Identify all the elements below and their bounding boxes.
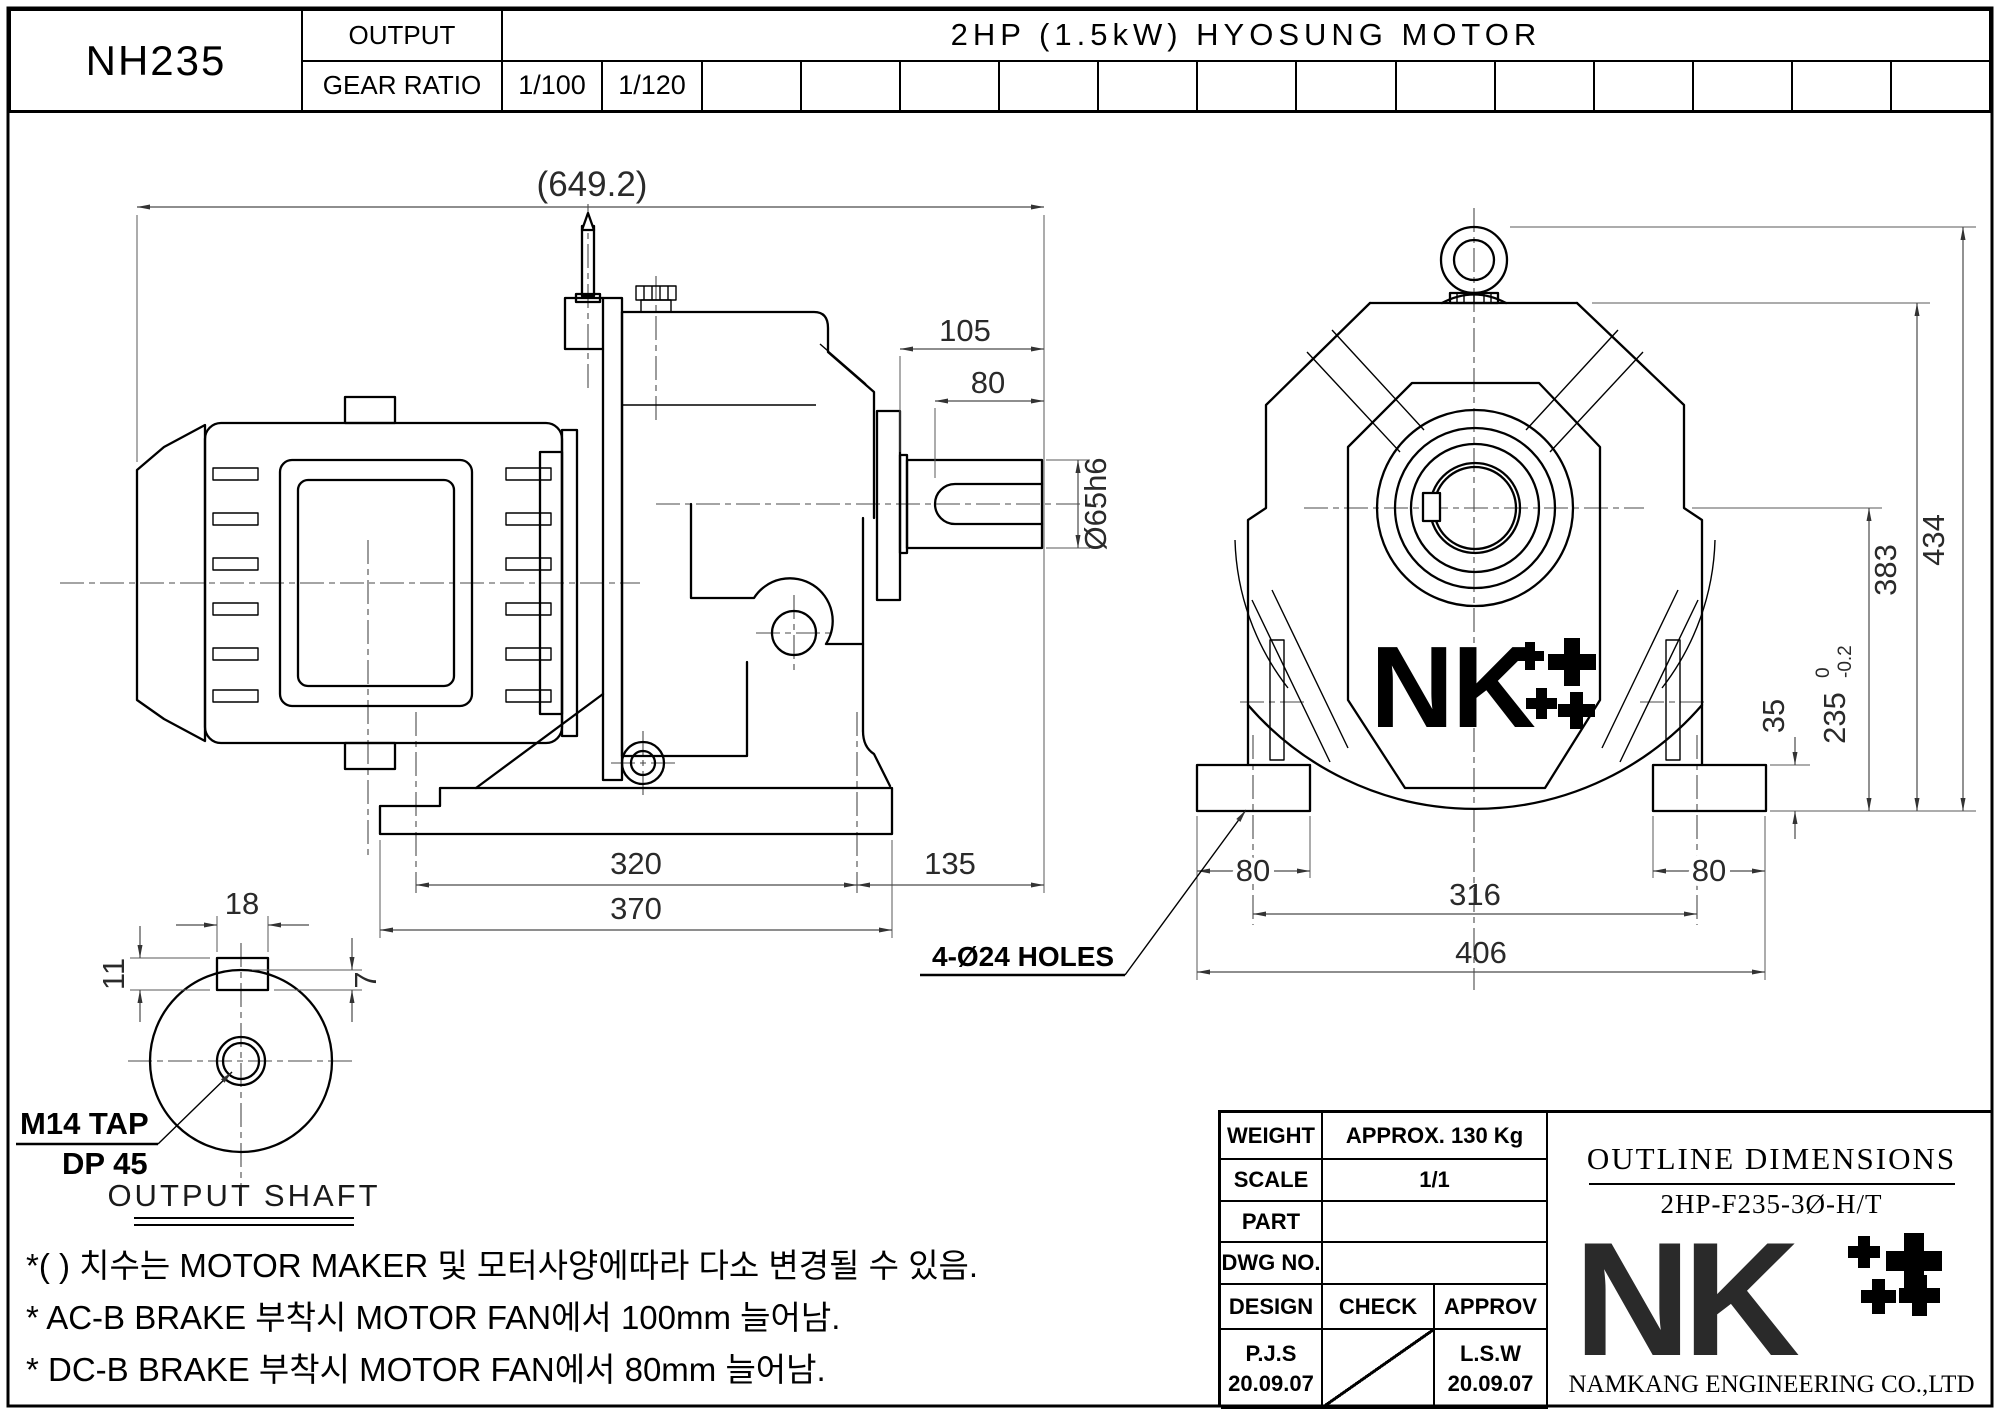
shaft-detail-view: 18 11 7 M14 TAP DP 45 OUTPUT SHAFT: [16, 886, 383, 1225]
doc-title: OUTLINE DIMENSIONS: [1548, 1141, 1995, 1177]
doc-model: 2HP-F235-3Ø-H/T: [1548, 1189, 1995, 1220]
dwg-no-value: [1323, 1243, 1548, 1285]
note-line-1: *( ) 치수는 MOTOR MAKER 및 모터사양에따라 다소 변경될 수 …: [26, 1240, 1026, 1292]
dwg-no-label: DWG NO.: [1221, 1243, 1323, 1285]
svg-text:NK: NK: [1370, 622, 1535, 752]
doc-title-rule: [1589, 1183, 1955, 1185]
dim-bolt-pitch-side: 320: [610, 846, 662, 881]
dim-foot-height: 35: [1756, 699, 1791, 733]
scale-value: 1/1: [1323, 1160, 1548, 1202]
dim-key-width: 18: [225, 886, 259, 921]
scale-label: SCALE: [1221, 1160, 1323, 1202]
dim-shaft-length: 105: [939, 313, 991, 348]
svg-text:235: 235: [1817, 692, 1852, 744]
weight-value: APPROX. 130 Kg: [1323, 1113, 1548, 1160]
notes-block: *( ) 치수는 MOTOR MAKER 및 모터사양에따라 다소 변경될 수 …: [26, 1240, 1026, 1396]
nk-logo-casting: NK: [1370, 622, 1596, 752]
nk-logo-text: NK: [1582, 1231, 1799, 1366]
dim-key-depth: 7: [348, 971, 383, 988]
title-block-right: OUTLINE DIMENSIONS 2HP-F235-3Ø-H/T NK NA…: [1548, 1113, 1995, 1409]
note-line-3: * DC-B BRAKE 부착시 MOTOR FAN에서 80mm 늘어남.: [26, 1344, 1026, 1396]
dim-shaft-diameter: Ø65h6: [1078, 457, 1113, 550]
tap-label-line1: M14 TAP: [20, 1106, 149, 1141]
dim-base-width: 406: [1455, 935, 1507, 970]
front-view: NK: [920, 208, 1976, 990]
check-signature-empty: [1323, 1330, 1435, 1409]
dim-center-height: 235 0 -0.2: [1813, 645, 1856, 744]
design-label: DESIGN: [1221, 1285, 1323, 1330]
part-label: PART: [1221, 1202, 1323, 1243]
dim-total-height: 434: [1916, 514, 1951, 566]
shaft-detail-caption: OUTPUT SHAFT: [107, 1178, 380, 1213]
part-value: [1323, 1202, 1548, 1243]
dim-overall-length: (649.2): [537, 165, 648, 204]
weight-label: WEIGHT: [1221, 1113, 1323, 1160]
approv-label: APPROV: [1435, 1285, 1548, 1330]
dim-body-height: 383: [1868, 544, 1903, 596]
base-plate: [380, 694, 892, 834]
svg-text:0: 0: [1813, 667, 1834, 678]
note-line-2: * AC-B BRAKE 부착시 MOTOR FAN에서 100mm 늘어남.: [26, 1292, 1026, 1344]
tap-label-line2: DP 45: [62, 1146, 148, 1181]
dim-hole-pitch: 316: [1449, 877, 1501, 912]
side-view: (649.2) 105 80 Ø65h6 320 135 370: [60, 165, 1113, 938]
dim-foot-width-right: 80: [1692, 853, 1726, 888]
dim-overhang: 135: [924, 846, 976, 881]
dim-foot-width-left: 80: [1236, 853, 1270, 888]
dim-base-length: 370: [610, 891, 662, 926]
mount-plate: [565, 213, 622, 780]
approv-signature: L.S.W20.09.07: [1435, 1330, 1548, 1409]
drawing-sheet: NH235 OUTPUT GEAR RATIO 2HP (1.5kW) HYOS…: [0, 0, 2000, 1414]
svg-text:-0.2: -0.2: [1835, 645, 1856, 678]
company-name: NAMKANG ENGINEERING CO.,LTD: [1548, 1371, 1995, 1399]
design-signature: P.J.S20.09.07: [1221, 1330, 1323, 1409]
holes-callout: 4-Ø24 HOLES: [932, 941, 1114, 972]
title-block: WEIGHT APPROX. 130 Kg SCALE 1/1 PART DWG…: [1218, 1110, 1992, 1406]
motor-fins: [213, 468, 551, 702]
dim-key-length: 80: [971, 365, 1005, 400]
check-label: CHECK: [1323, 1285, 1435, 1330]
dim-key-total: 11: [96, 958, 131, 990]
